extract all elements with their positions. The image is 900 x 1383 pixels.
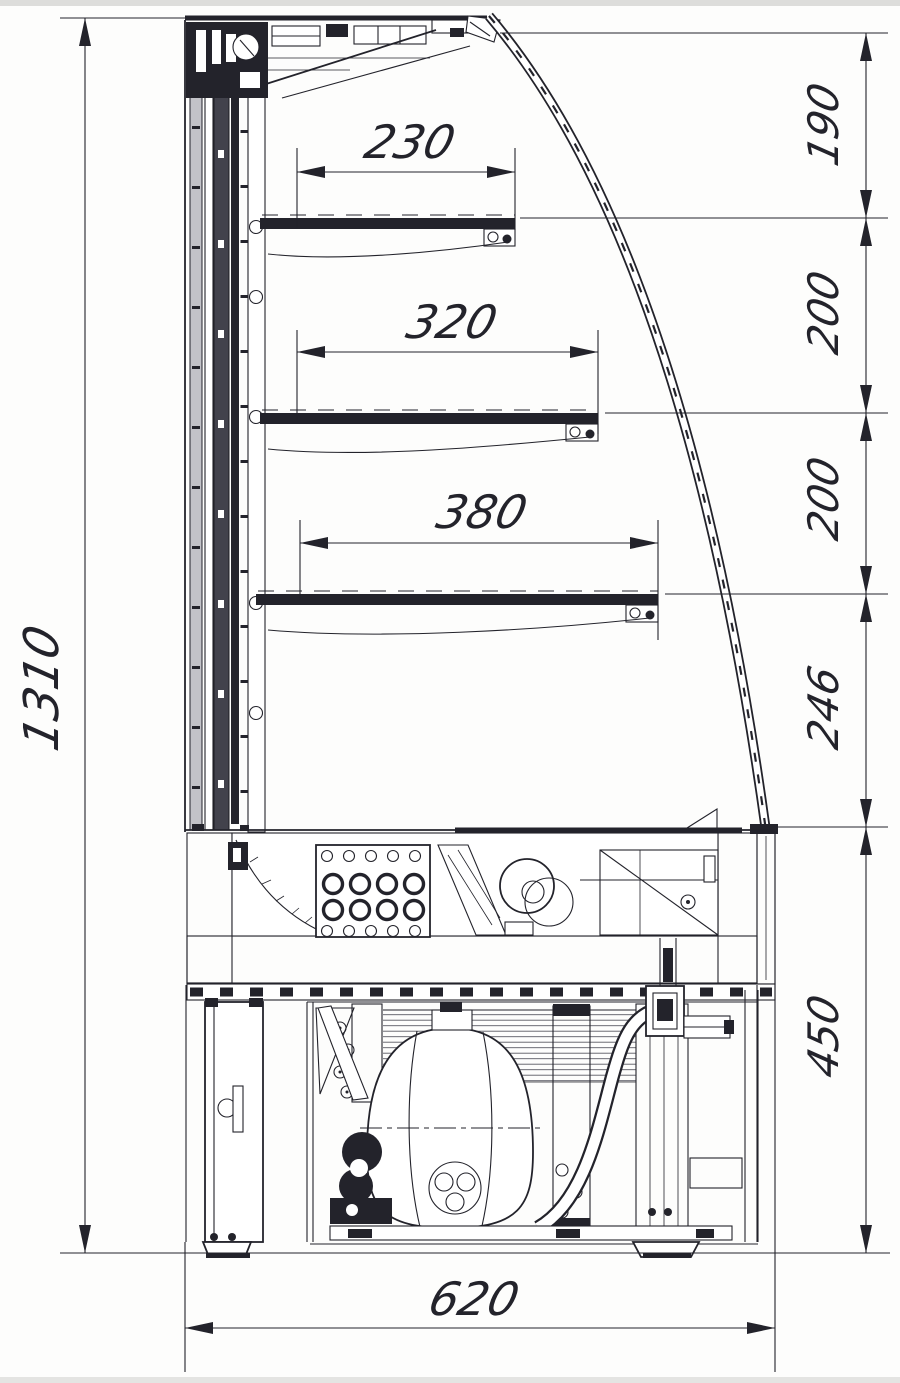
dim-label-shelf-380: 380	[431, 487, 532, 540]
dim-label-base-620: 620	[423, 1274, 524, 1327]
machinery-compartment	[186, 938, 775, 1258]
evaporator-coil	[316, 845, 430, 937]
dim-label-segment-200a: 200	[800, 266, 849, 358]
dim-label-segment-246: 246	[800, 661, 849, 753]
condenser-coil-tall	[636, 1004, 688, 1232]
technical-drawing-sheet: 1310 190 200 200 246 450	[0, 0, 900, 1383]
left-service-panel	[205, 998, 263, 1242]
dim-label-shelf-320: 320	[401, 297, 502, 350]
shelf-1	[260, 215, 515, 257]
dim-label-segment-450: 450	[800, 990, 849, 1082]
shelf-2	[260, 410, 598, 452]
refrigerated-well	[185, 809, 775, 984]
display-case-section-drawing: 1310 190 200 200 246 450	[0, 0, 900, 1383]
shelf-support-column	[248, 94, 265, 832]
foot-right	[633, 1242, 699, 1258]
dim-label-segment-190: 190	[800, 78, 849, 170]
drain-vent	[687, 809, 717, 828]
back-panel	[185, 20, 265, 832]
dim-label-segment-200b: 200	[800, 452, 849, 544]
canopy	[185, 16, 500, 99]
dim-shelf-230: 230	[297, 117, 515, 230]
dim-label-shelf-230: 230	[359, 117, 460, 170]
scan-edge-top	[0, 0, 900, 6]
insulation-right	[718, 833, 757, 983]
glass-front	[489, 16, 778, 834]
dim-label-overall-height: 1310	[15, 620, 70, 756]
scan-edge-bottom	[0, 1377, 900, 1383]
shelf-3	[256, 591, 658, 634]
dim-shelf-380: 380	[300, 487, 658, 640]
insulation-left	[187, 833, 232, 983]
